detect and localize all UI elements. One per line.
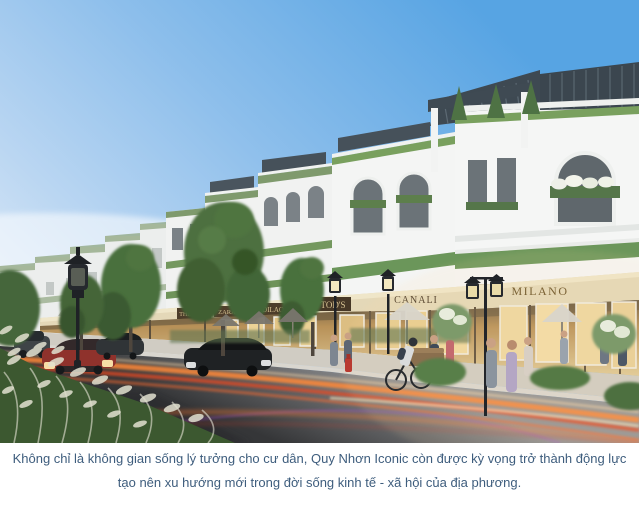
svg-text:TOD'S: TOD'S: [321, 300, 346, 310]
